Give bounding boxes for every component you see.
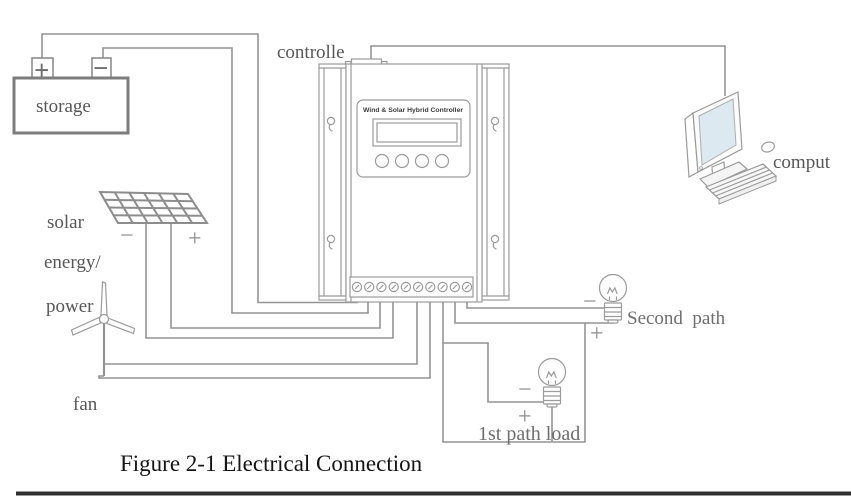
solar-plus-sign: + — [188, 226, 202, 252]
controller-terminal-strip — [350, 277, 473, 297]
solar-label-line1: solar — [47, 212, 85, 233]
battery-label: storage — [36, 96, 91, 117]
solar-label-line2: energy/ — [44, 252, 101, 273]
second-path-label: Second path — [627, 308, 726, 329]
fan-label: fan — [73, 394, 98, 415]
battery-plus-sign: + — [34, 55, 49, 85]
bulb-base — [605, 303, 622, 323]
controller-unit: controlle — [277, 42, 509, 302]
turbine-blade-left — [72, 318, 101, 336]
figure-electrical-connection: + − storage − + solar energy/ power fan — [0, 0, 851, 500]
second-path-plus-sign: + — [590, 321, 604, 347]
second-path-minus-sign: − — [583, 289, 597, 315]
controller-button — [416, 155, 429, 168]
solar-label-line3: power — [46, 296, 94, 317]
controller-bracket-right — [482, 64, 509, 300]
wire-fan-1 — [104, 297, 417, 364]
bulb-base — [544, 387, 561, 407]
controller-label: controlle — [277, 42, 345, 63]
controller-button — [396, 155, 409, 168]
solar-minus-sign: − — [120, 223, 134, 249]
bottom-strip — [16, 492, 851, 496]
controller-button — [436, 155, 449, 168]
second-path-load: − + Second path — [583, 275, 726, 348]
battery-minus-sign: − — [93, 53, 108, 83]
first-path-label: 1st path load — [478, 423, 580, 445]
controller-button — [376, 155, 389, 168]
computer-label: comput — [773, 152, 831, 173]
solar-panel: − + solar energy/ power — [44, 192, 207, 317]
bulb-globe — [539, 359, 566, 386]
bulb-globe — [600, 275, 627, 302]
controller-lcd-screen — [377, 123, 457, 142]
turbine-blade-right — [107, 318, 135, 334]
turbine-hub — [100, 315, 109, 324]
computer-unit: comput — [685, 92, 831, 204]
controller-bracket-left — [319, 64, 346, 300]
first-path-minus-sign: − — [518, 377, 532, 403]
turbine-blade-up — [101, 282, 107, 315]
solar-panel-grid — [105, 192, 203, 223]
figure-caption: Figure 2-1 Electrical Connection — [120, 451, 423, 476]
battery-unit: + − storage — [14, 53, 128, 133]
controller-panel-title: Wind & Solar Hybrid Controller — [363, 107, 463, 114]
